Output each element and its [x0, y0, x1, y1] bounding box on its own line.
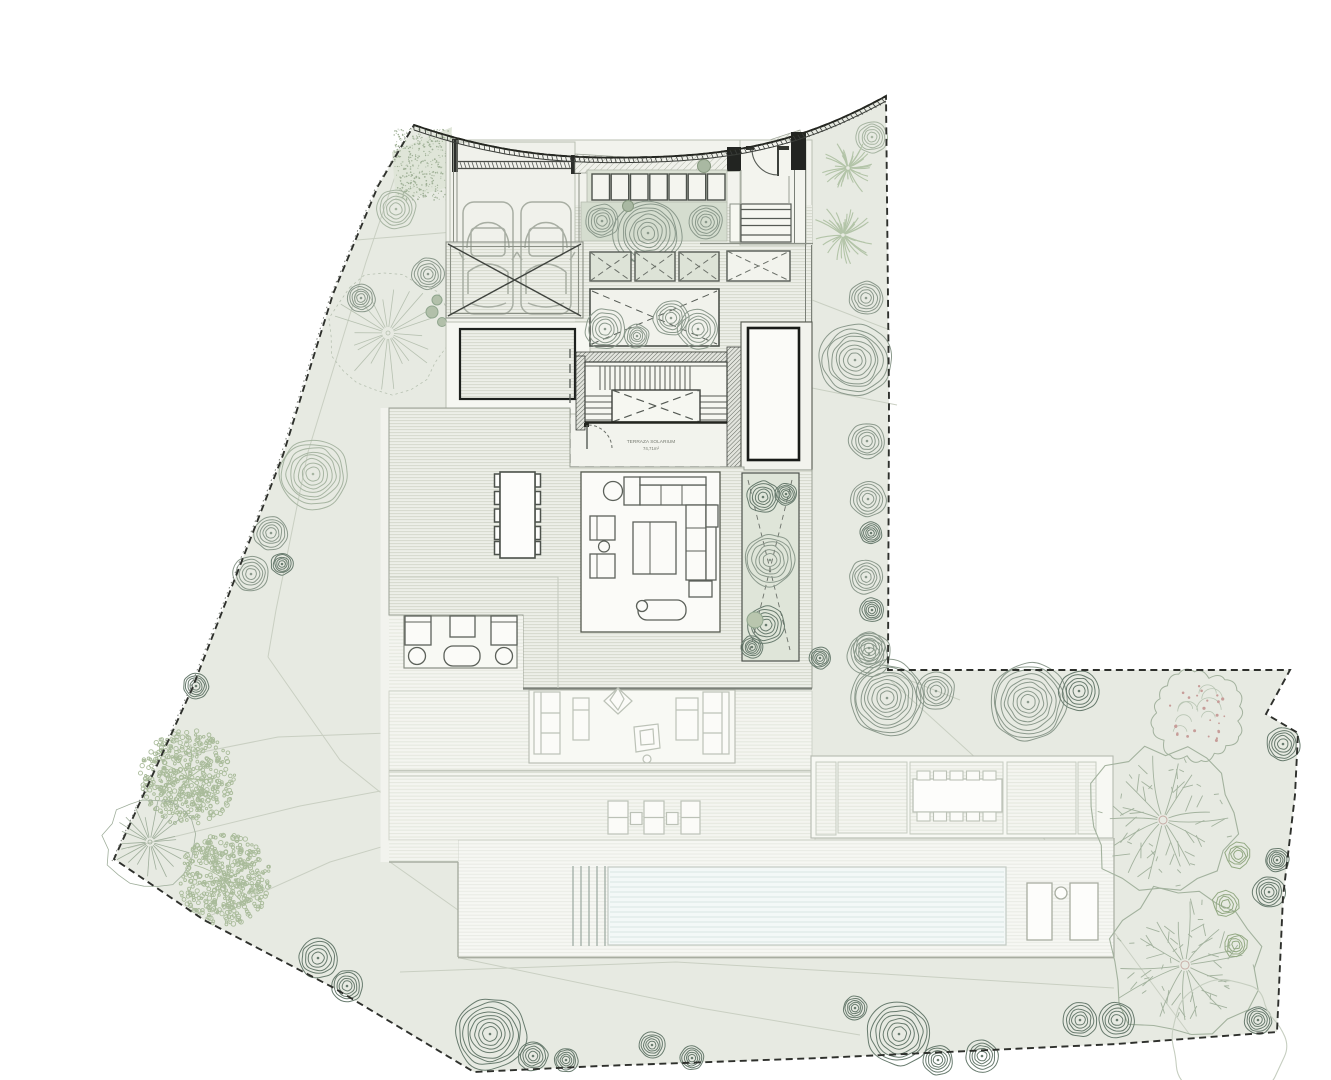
svg-text:TERRAZA SOLARIUM: TERRAZA SOLARIUM: [627, 439, 676, 445]
svg-text:74,71m²: 74,71m²: [643, 446, 660, 451]
